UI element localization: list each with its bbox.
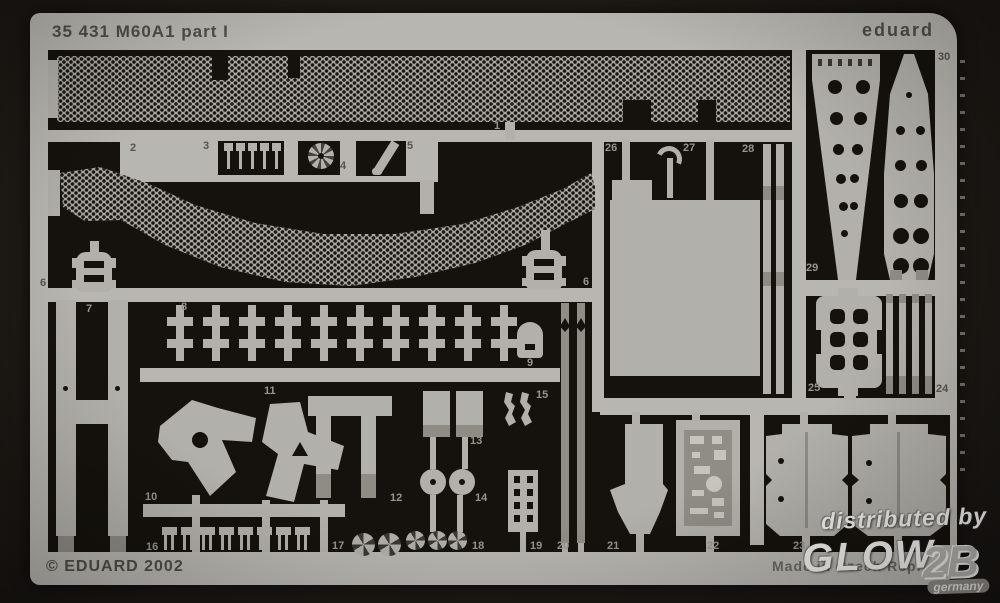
part-label-30: 30 — [938, 52, 950, 63]
wedge-hole — [914, 194, 928, 208]
pin-head — [224, 143, 233, 151]
dash — [960, 77, 965, 80]
part-26-plate — [610, 180, 760, 376]
part-label-22: 22 — [707, 541, 719, 552]
tab — [578, 543, 584, 552]
clip16-leg — [247, 535, 250, 550]
part-label-29: 29 — [806, 263, 818, 274]
tick — [828, 59, 832, 66]
wedge-hole — [895, 160, 906, 171]
dash — [960, 400, 965, 403]
dash — [960, 417, 965, 420]
tab — [430, 495, 436, 532]
mesh-notch — [288, 56, 300, 78]
part-label-11: 11 — [264, 386, 276, 397]
strip — [561, 303, 569, 543]
h-frame-cross — [56, 400, 128, 424]
clip-bar — [167, 339, 193, 348]
part-24-strips — [886, 294, 934, 394]
divider-right-column — [792, 50, 806, 415]
part-12-pi-bracket — [308, 396, 392, 502]
clip16-leg — [259, 535, 262, 550]
strip24-pad — [912, 376, 919, 394]
pi-pad — [361, 474, 376, 498]
mesh-notch — [212, 56, 228, 80]
clip-bar — [491, 317, 517, 326]
rivet-hole — [63, 386, 68, 391]
tab — [505, 122, 515, 140]
pi-pad — [316, 474, 331, 498]
strip24-pad — [899, 376, 906, 394]
pin-head — [236, 143, 245, 151]
tab — [48, 170, 60, 216]
bracket-ear — [560, 278, 566, 286]
clip-center — [356, 305, 364, 361]
part-20-strips — [559, 303, 589, 552]
greeble — [692, 452, 700, 458]
part-1-mesh-strip — [57, 56, 790, 122]
ladder-hole — [527, 489, 533, 496]
part-18-disc — [406, 531, 425, 550]
plate-main — [610, 200, 760, 376]
clip16-leg — [221, 535, 224, 550]
band-bottom-groups — [600, 398, 935, 415]
part-label-7: 7 — [86, 304, 92, 315]
dash — [960, 315, 965, 318]
part-label-17: 17 — [332, 541, 344, 552]
pin-head — [272, 143, 281, 151]
clip16-leg — [228, 535, 231, 550]
plate-notch — [816, 330, 821, 354]
tab — [520, 530, 526, 552]
dash — [960, 264, 965, 267]
dash — [960, 366, 965, 369]
tab — [320, 500, 328, 552]
greeble — [690, 508, 708, 514]
greeble — [694, 466, 710, 474]
clip-bar — [203, 339, 229, 348]
lever-foot — [372, 168, 382, 175]
wedge-tab — [916, 270, 928, 280]
part-25-plate — [816, 296, 882, 388]
divider-bottom-right — [750, 415, 764, 545]
greeble-disc — [706, 476, 722, 492]
clip-bar — [383, 339, 409, 348]
strip24-pad — [925, 294, 932, 303]
pin-head — [260, 143, 269, 151]
strip-pad — [763, 272, 771, 286]
dash — [960, 383, 965, 386]
dash — [960, 94, 965, 97]
clip-bar — [311, 317, 337, 326]
film-dashes — [960, 60, 968, 480]
part-27-hook — [656, 146, 680, 198]
part-label-2: 2 — [130, 143, 136, 154]
part-label-12: 12 — [390, 493, 402, 504]
pin-stem — [251, 151, 254, 169]
pin-stem — [239, 151, 242, 169]
greeble — [712, 498, 724, 506]
part-9-bell — [517, 322, 543, 358]
part-18-disc — [428, 531, 447, 550]
ladder-hole — [527, 476, 533, 483]
part-label-1: 1 — [494, 121, 500, 132]
clip16-leg — [297, 535, 300, 550]
clip16-bar — [200, 527, 215, 535]
clip16-bar — [257, 527, 272, 535]
tick — [818, 59, 822, 66]
part-label-5: 5 — [407, 141, 413, 152]
clip-center — [284, 305, 292, 361]
clip-bar — [455, 317, 481, 326]
strip-pad — [776, 186, 784, 200]
clip16-leg — [202, 535, 205, 550]
distributor-watermark: distributed by GLOW 2B germany — [768, 494, 1000, 602]
disc-center-hole — [318, 153, 324, 159]
photo-of-photoetch-sheet: 35 431 M60A1 part I eduard — [0, 0, 1000, 603]
clip16-bar — [219, 527, 234, 535]
disc-hole — [459, 479, 465, 485]
h-frame-foot — [110, 536, 126, 552]
clip-bar — [203, 317, 229, 326]
strip24-pad — [886, 376, 893, 394]
dash — [960, 247, 965, 250]
bracket-body — [76, 252, 112, 292]
bracket-ear — [560, 256, 566, 266]
part-label-10: 10 — [145, 492, 157, 503]
part-label-3: 3 — [203, 141, 209, 152]
bracket-body — [526, 250, 562, 290]
band-clips-bottom — [140, 368, 560, 382]
tick — [838, 59, 842, 66]
bell-slot — [525, 344, 535, 350]
bracket-ear — [110, 280, 116, 288]
tab — [420, 180, 434, 214]
wedge-hole — [854, 112, 867, 125]
clip-center — [500, 305, 508, 361]
wedge-hole — [839, 202, 848, 211]
wedge-hole — [850, 202, 858, 210]
dash — [960, 298, 965, 301]
disc-hole — [430, 479, 436, 485]
strip-pad — [776, 272, 784, 286]
clip16-leg — [304, 535, 307, 550]
part-label-27: 27 — [683, 143, 695, 154]
plate-hole — [853, 309, 868, 324]
tab — [632, 412, 640, 426]
wedge-hole — [894, 194, 908, 208]
clip-bar — [347, 339, 373, 348]
bracket-ear — [522, 256, 528, 266]
dash — [960, 349, 965, 352]
dash — [960, 145, 965, 148]
eduard-logo: eduard — [862, 20, 934, 41]
dash — [960, 281, 965, 284]
copyright-text: © EDUARD 2002 — [46, 558, 184, 576]
clip16-bar — [276, 527, 291, 535]
part-3-pins — [224, 143, 284, 171]
part-label-26: 26 — [605, 143, 617, 154]
part-label-28: 28 — [742, 144, 754, 155]
clip-center — [176, 305, 184, 361]
tab — [636, 532, 644, 552]
part-label-15: 15 — [536, 390, 548, 401]
wedge-hole — [830, 112, 843, 125]
plate-notch — [877, 330, 882, 354]
part-label-14: 14 — [475, 493, 487, 504]
part-6-bracket-left — [72, 250, 116, 294]
clip-bar — [239, 339, 265, 348]
part-18-disc — [448, 531, 467, 550]
bracket-ear — [72, 280, 78, 288]
wedge-hole — [916, 126, 925, 135]
clip-bar — [311, 339, 337, 348]
part-17-disc — [378, 533, 401, 556]
clip-center — [320, 305, 328, 361]
clip-center — [248, 305, 256, 361]
part-5-lever — [370, 140, 404, 178]
clip16-leg — [209, 535, 212, 550]
clip16-leg — [183, 535, 186, 550]
clip-bar — [167, 317, 193, 326]
mesh-notch — [623, 100, 651, 122]
strip-pad — [763, 186, 771, 200]
divider-left-of-plate — [592, 140, 604, 412]
dash — [960, 162, 965, 165]
clip16-leg — [240, 535, 243, 550]
plate-hole — [853, 355, 868, 370]
clip16-leg — [278, 535, 281, 550]
part-label-21: 21 — [607, 541, 619, 552]
part-28-strip — [763, 144, 771, 394]
dash — [960, 111, 965, 114]
wedge-hole — [913, 228, 929, 244]
part-label-13: 13 — [470, 436, 482, 447]
dash — [960, 230, 965, 233]
tab — [622, 140, 630, 184]
part-label-4: 4 — [340, 161, 346, 172]
tick — [858, 59, 862, 66]
pi-top — [308, 396, 392, 416]
sheet-title: 35 431 M60A1 part I — [52, 22, 229, 42]
greeble — [690, 436, 704, 444]
clip-bar — [383, 317, 409, 326]
plate-hole — [830, 355, 845, 370]
plate-hole — [853, 332, 868, 347]
greeble — [712, 436, 722, 444]
part-label-9: 9 — [527, 358, 533, 369]
strip24-pad — [886, 294, 893, 303]
clip16-bar — [162, 527, 177, 535]
plate-body — [816, 296, 882, 388]
part-16-clips-row — [162, 524, 318, 552]
part-label-16: 16 — [146, 542, 158, 553]
ladder-hole — [527, 515, 533, 522]
mesh-notch — [698, 100, 716, 122]
tab — [48, 60, 58, 118]
band-mid — [48, 288, 600, 302]
greeble — [714, 512, 724, 518]
part-19-holes — [514, 476, 534, 528]
part-label-24: 24 — [936, 384, 948, 395]
wedge-hole — [841, 230, 848, 237]
part-label-20: 20 — [557, 541, 569, 552]
plate-hole — [830, 309, 845, 324]
dash — [960, 213, 965, 216]
fender-hole — [866, 460, 872, 466]
clip-bar — [239, 317, 265, 326]
dash — [960, 434, 965, 437]
clip-center — [212, 305, 220, 361]
part-17-disc — [352, 533, 375, 556]
ladder-hole — [514, 515, 520, 522]
strip24-pad — [899, 294, 906, 303]
clip16-bar — [295, 527, 310, 535]
pin-head — [248, 143, 257, 151]
dash — [960, 196, 965, 199]
clip-bar — [491, 339, 517, 348]
wedge-hole — [828, 80, 842, 94]
dash — [960, 451, 965, 454]
strip — [577, 303, 585, 543]
fender-hole — [778, 458, 784, 464]
part-11-hole — [192, 432, 208, 448]
wedge-hole — [896, 126, 905, 135]
pin-stem — [263, 151, 266, 169]
part-label-25: 25 — [808, 383, 820, 394]
h-frame-foot — [58, 536, 74, 552]
dash — [960, 332, 965, 335]
clip-center — [428, 305, 436, 361]
clip16-leg — [190, 535, 193, 550]
pin-stem — [275, 151, 278, 169]
plate-tab — [838, 288, 858, 298]
clip16-leg — [266, 535, 269, 550]
wedge-hole — [852, 144, 863, 155]
tick — [868, 59, 872, 66]
part-label-6: 6 — [40, 278, 46, 289]
bracket-slot — [534, 273, 554, 280]
ladder-hole — [527, 502, 533, 509]
part-13-pad — [423, 425, 450, 437]
part-10-flat-strip — [143, 504, 345, 517]
wedge-hole — [833, 144, 844, 155]
ladder-hole — [514, 489, 520, 496]
wedge-hole — [850, 174, 859, 183]
clip-bar — [419, 317, 445, 326]
clip-bar — [275, 339, 301, 348]
ladder-hole — [514, 476, 520, 483]
clip-bar — [347, 317, 373, 326]
part-label-19: 19 — [530, 541, 542, 552]
clip16-leg — [171, 535, 174, 550]
part-28-strip — [776, 144, 784, 394]
hook-stem — [667, 158, 673, 198]
strip24-pad — [925, 376, 932, 394]
part-22-detail-plate — [676, 420, 740, 536]
dash — [960, 179, 965, 182]
part-8-clips-row — [165, 303, 525, 365]
clip-bar — [419, 339, 445, 348]
part-label-6b: 6 — [583, 277, 589, 288]
wedge-tab — [890, 270, 902, 280]
tab — [457, 495, 463, 532]
dash — [960, 128, 965, 131]
bracket-ear — [72, 258, 78, 268]
greeble — [714, 450, 726, 460]
clip16-bar — [238, 527, 253, 535]
watermark-logo-glow: GLOW — [802, 532, 936, 582]
clip-center — [464, 305, 472, 361]
plate-hole — [830, 332, 845, 347]
plate-tab — [612, 180, 652, 202]
part-label-8: 8 — [181, 302, 187, 313]
strip24-pad — [912, 294, 919, 303]
watermark-country: germany — [927, 578, 989, 594]
wedge-hole — [906, 92, 912, 98]
watermark-logo: GLOW 2B germany — [793, 526, 1000, 593]
clip16-leg — [285, 535, 288, 550]
wedge-hole — [893, 228, 909, 244]
greeble — [692, 490, 704, 496]
clip-bar — [455, 339, 481, 348]
tab — [844, 386, 856, 400]
bracket-slot — [84, 261, 104, 268]
bracket-slot — [534, 259, 554, 266]
wedge-hole — [916, 160, 927, 171]
bracket-ear — [110, 258, 116, 268]
clip16-leg — [164, 535, 167, 550]
wedge-hole — [836, 174, 846, 184]
part-label-18: 18 — [472, 541, 484, 552]
rivet-hole — [115, 386, 120, 391]
clip-center — [392, 305, 400, 361]
part-4-disc — [308, 143, 334, 169]
tab — [462, 437, 468, 469]
bracket-slot — [84, 275, 104, 282]
part-6-bracket-right — [522, 248, 566, 292]
bracket-ear — [522, 278, 528, 286]
dash — [960, 468, 965, 471]
pin-stem — [227, 151, 230, 169]
clip16-bar — [181, 527, 196, 535]
tick — [848, 59, 852, 66]
dash — [960, 60, 965, 63]
ladder-hole — [514, 502, 520, 509]
wedge-hole — [856, 80, 870, 94]
clip-bar — [275, 317, 301, 326]
tab — [430, 437, 436, 469]
